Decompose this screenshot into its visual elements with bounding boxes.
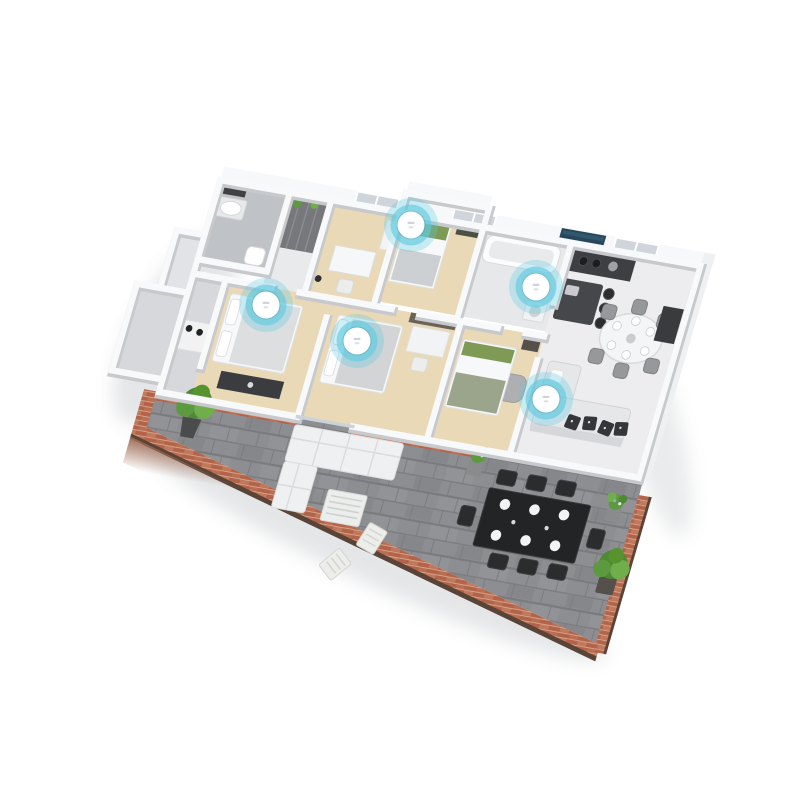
floor-plan-image	[0, 0, 800, 800]
sensor-glyph	[264, 306, 269, 308]
sensor-glyph	[408, 222, 415, 224]
desk-chair	[336, 278, 355, 294]
sensor-glyph	[409, 226, 414, 228]
sensor-glyph	[544, 400, 549, 402]
coffee-table	[320, 489, 368, 527]
sensor-glyph	[543, 396, 550, 398]
sensor-2-hotspot[interactable]	[384, 198, 438, 252]
sensor-5-hotspot[interactable]	[519, 372, 573, 426]
sensor-glyph	[355, 342, 360, 344]
sensor-glyph	[534, 288, 539, 290]
sensor-1-hotspot[interactable]	[239, 278, 293, 332]
sensor-3-hotspot[interactable]	[330, 314, 384, 368]
sensor-glyph	[263, 302, 270, 304]
sensor-glyph	[533, 284, 540, 286]
floor-plan-render	[0, 0, 800, 800]
chair	[410, 356, 429, 372]
sensor-glyph	[354, 338, 361, 340]
sensor-4-hotspot[interactable]	[509, 260, 563, 314]
